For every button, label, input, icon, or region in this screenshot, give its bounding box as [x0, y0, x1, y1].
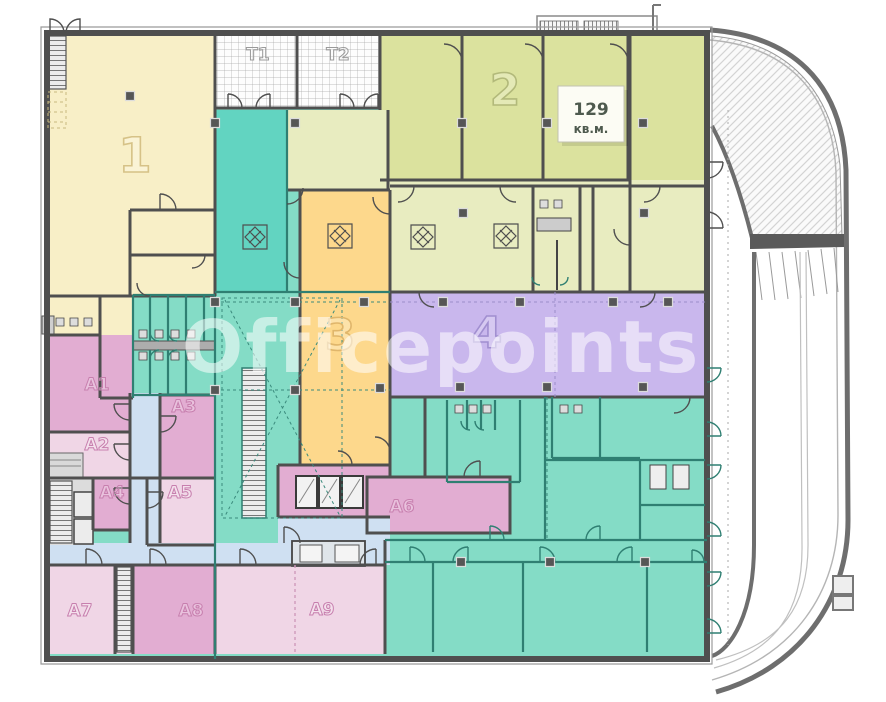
zone2-wc-counter [537, 218, 571, 231]
terrace-t2-label: T2 [326, 45, 349, 65]
elevator-shaft [319, 476, 340, 508]
room-a6-label: A6 [390, 497, 415, 517]
balcony-grate [584, 21, 618, 31]
room-a8-label: A8 [179, 601, 204, 621]
wc-toilet [650, 465, 666, 489]
room-a5-label: A5 [168, 483, 193, 503]
zone-2-label: 2 [490, 65, 521, 116]
ramp-fan-lines [756, 248, 838, 300]
ramp-side-box [833, 576, 853, 594]
room-a4-label: A4 [100, 483, 125, 503]
room-a9-label: A9 [310, 600, 335, 620]
terrace-t1-label: T1 [246, 45, 269, 65]
area-badge: 129 кв.м. [558, 86, 628, 146]
room-a8b-fill [215, 565, 295, 654]
top-balcony [537, 5, 661, 33]
ramp-hatch-area [712, 36, 842, 236]
room-a9-fill [295, 565, 385, 654]
room-a1-label: A1 [85, 375, 110, 395]
zone-2-mid-fill [388, 180, 707, 292]
corridor-vertical-fill [130, 393, 160, 545]
floor-plan-page: 1 2 3 4 T1 T2 A1 A2 A3 A4 A5 A6 A7 A8 A9… [0, 0, 886, 702]
balcony-grate [540, 21, 578, 31]
zone-1-label: 1 [118, 128, 151, 184]
ramp-curb [712, 252, 754, 656]
watermark: Officepoints [182, 305, 700, 389]
corridor-block-fill [278, 517, 390, 543]
elevator-cab [300, 545, 322, 562]
stair-top-left [48, 36, 66, 89]
elevator-shaft [74, 519, 93, 544]
atrium-strip-fill [215, 110, 287, 292]
zone1-fixtures [56, 318, 92, 326]
zone-2-strip-fill [287, 110, 388, 190]
stair-a7-a8 [117, 567, 131, 652]
elevator-shaft [296, 476, 317, 508]
area-badge-value: 129 [573, 100, 609, 120]
room-a2-label: A2 [85, 435, 110, 455]
stair-core-left [50, 481, 72, 543]
area-badge-unit: кв.м. [574, 122, 609, 136]
elevator-shaft [74, 492, 93, 517]
room-a7-label: A7 [68, 601, 93, 621]
room-a3-label: A3 [172, 397, 197, 417]
floor-plan-svg: 1 2 3 4 T1 T2 A1 A2 A3 A4 A5 A6 A7 A8 A9… [0, 0, 886, 702]
ramp-edge-band [750, 234, 844, 249]
parking-ramp [710, 30, 853, 692]
wc-toilet [673, 465, 689, 489]
elevator-cab [335, 545, 359, 562]
elevator-shaft [342, 476, 363, 508]
ramp-side-box [833, 596, 853, 610]
